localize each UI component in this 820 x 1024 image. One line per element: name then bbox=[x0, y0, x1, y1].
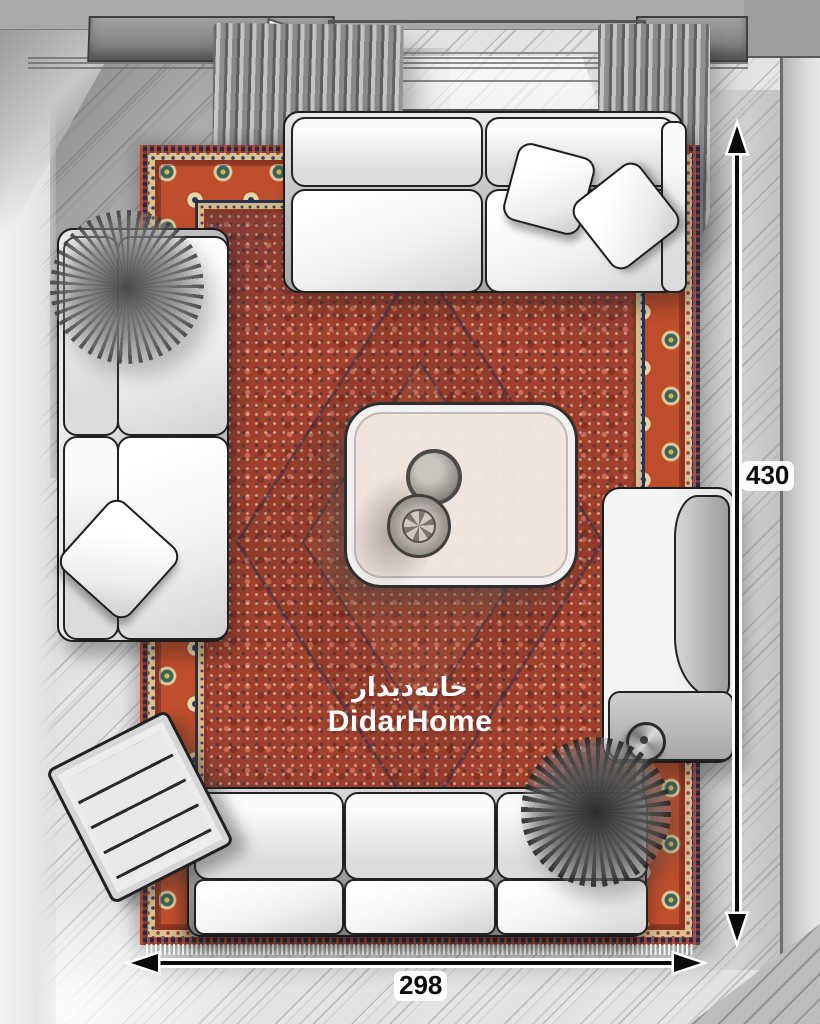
length-dimension-label: 430 bbox=[741, 461, 794, 491]
width-dimension-label: 298 bbox=[394, 971, 447, 1001]
round-tray-patterned bbox=[387, 494, 451, 558]
potted-plant-dark bbox=[521, 737, 671, 887]
sofa-top bbox=[283, 111, 683, 293]
seat-cushion bbox=[496, 879, 648, 935]
brand-watermark: خانه‌دیدار DidarHome bbox=[310, 672, 510, 739]
brand-name-english: DidarHome bbox=[310, 705, 510, 740]
chaise-lounge bbox=[602, 487, 736, 763]
back-cushion bbox=[291, 117, 483, 187]
top-wall-right-section bbox=[744, 0, 820, 58]
seat-cushion bbox=[291, 189, 483, 293]
back-cushion bbox=[344, 792, 496, 880]
right-wall bbox=[780, 0, 820, 1024]
seat-cushion bbox=[194, 879, 344, 935]
rug-fringe bbox=[146, 944, 694, 955]
brand-name-persian: خانه‌دیدار bbox=[310, 672, 510, 705]
chaise-backrest bbox=[674, 495, 730, 699]
tray-rosette-motif bbox=[402, 509, 436, 543]
living-room-plan: خانه‌دیدار DidarHome bbox=[0, 0, 820, 1024]
seat-cushion bbox=[344, 879, 496, 935]
potted-plant bbox=[50, 210, 204, 364]
coffee-table bbox=[344, 402, 578, 588]
